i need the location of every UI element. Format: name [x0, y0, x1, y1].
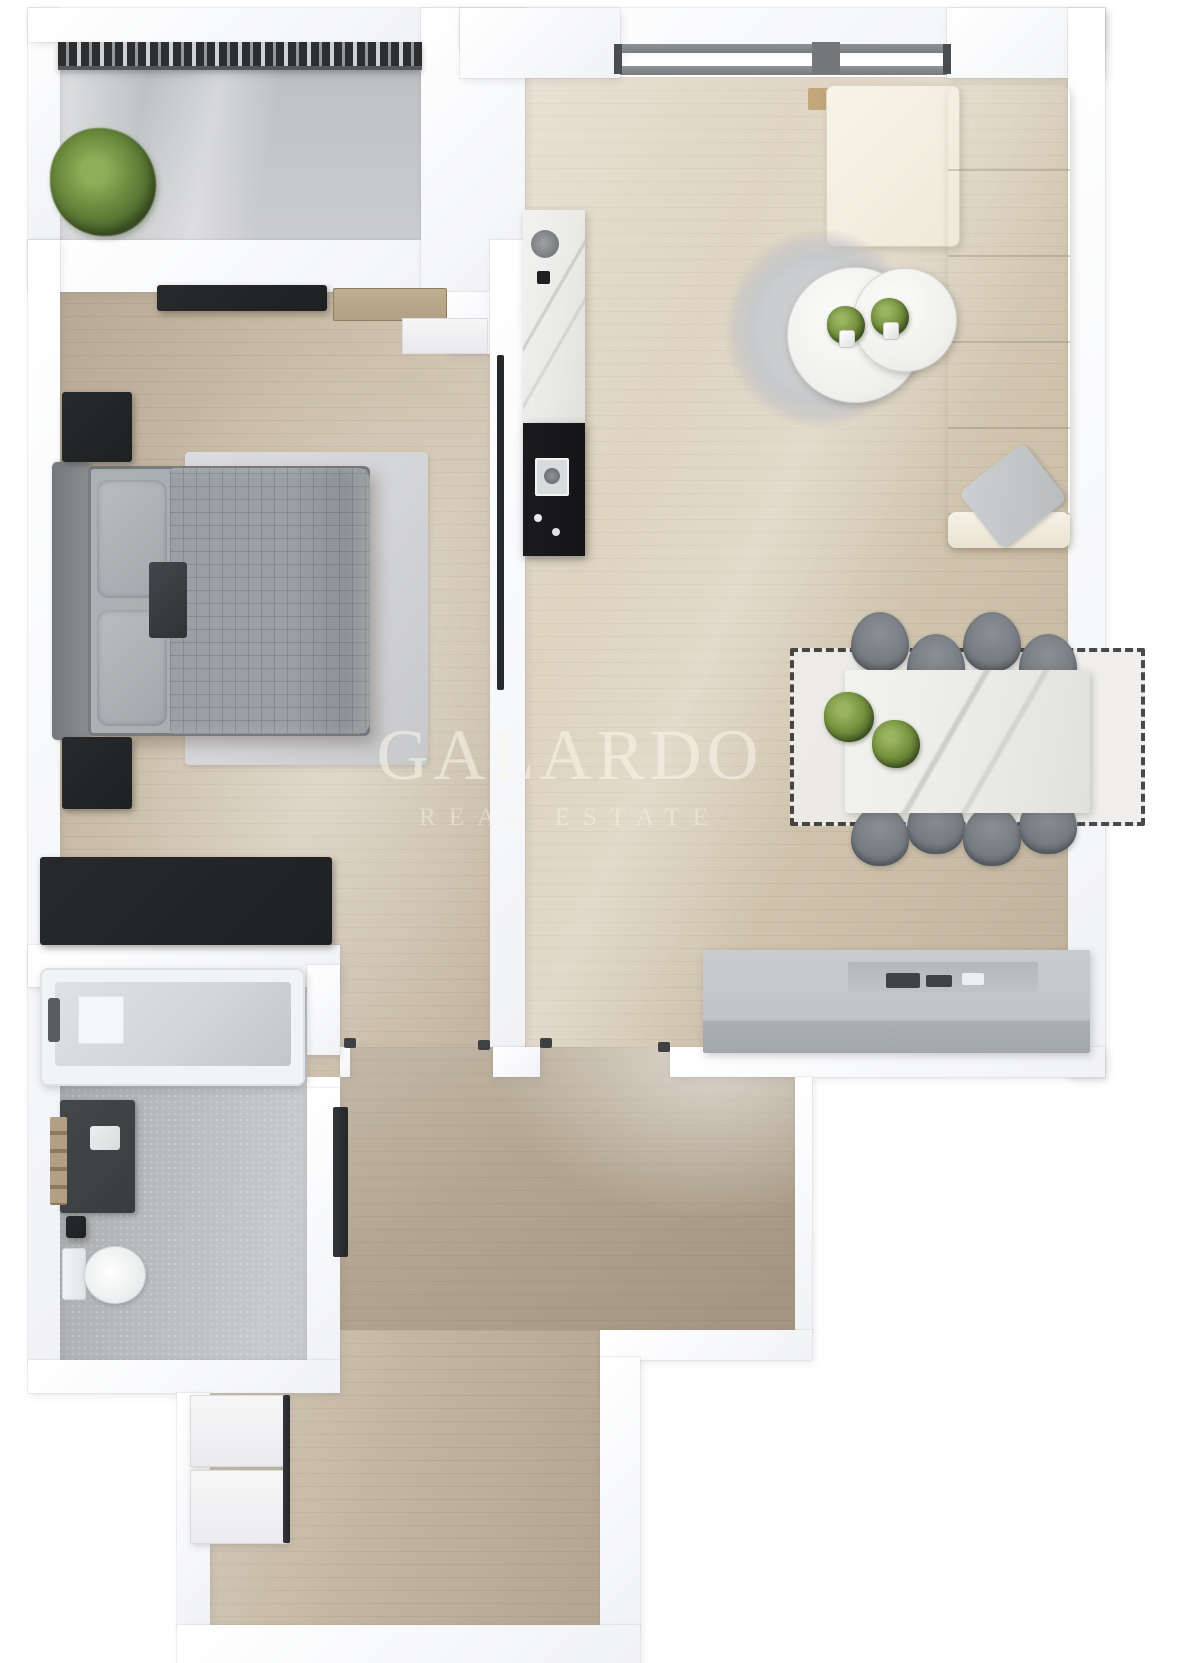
sideboard-slot: [886, 973, 920, 988]
door-stop: [540, 1038, 552, 1048]
black-console: [40, 857, 332, 945]
toilet-tank: [62, 1248, 86, 1300]
towel-rack: [50, 1117, 67, 1205]
sideboard-slot: [926, 975, 952, 987]
dining-table-plant: [872, 720, 920, 768]
balcony-railing: [58, 42, 422, 70]
floor-plan: GALARDO REAL ESTATE: [0, 0, 1200, 1663]
bathtub-faucet: [48, 998, 60, 1042]
bathroom-bin: [66, 1216, 86, 1238]
white-cabinet: [402, 318, 488, 354]
dining-chair: [851, 612, 909, 672]
bed-headboard: [52, 462, 90, 740]
sideboard-detail: [962, 973, 984, 985]
cooktop-knob: [534, 514, 542, 522]
window-frame-inner: [620, 66, 947, 75]
wardrobe-top: [157, 285, 327, 311]
wall-hall-right: [795, 1077, 812, 1332]
door-stop: [658, 1042, 670, 1052]
plant-pot: [839, 330, 855, 348]
wall-bath-right-upper: [307, 965, 340, 1055]
wall-bath-bottom: [28, 1360, 340, 1393]
dining-chair: [963, 612, 1021, 672]
vanity-sink: [90, 1126, 120, 1150]
cooktop-knob: [552, 528, 560, 536]
bed-duvet: [170, 468, 370, 734]
toilet: [84, 1246, 146, 1304]
vanity-unit: [60, 1100, 135, 1213]
wall-balcony-top: [28, 8, 460, 42]
wall-tv: [497, 355, 504, 690]
wall-living-bottom-a: [493, 1047, 540, 1077]
window-end-cap: [943, 44, 951, 74]
bathtub-shelf: [78, 996, 124, 1044]
bed-throw: [149, 562, 187, 638]
dining-chair: [963, 806, 1021, 866]
dining-table-plant: [824, 692, 874, 742]
wall-step: [600, 1330, 812, 1360]
nightstand: [62, 737, 132, 809]
window-frame-outer: [620, 44, 947, 53]
door-stop: [344, 1038, 356, 1048]
plant-pot: [883, 322, 899, 340]
wall-bottom: [177, 1625, 640, 1663]
kitchen-sink: [531, 230, 559, 258]
nightstand: [62, 392, 132, 462]
dresser: [333, 288, 447, 321]
hall-mirror: [333, 1107, 348, 1257]
wall-corridor-right: [600, 1357, 640, 1627]
wall-living-bottom-stub: [340, 1047, 350, 1077]
cooktop: [535, 458, 569, 496]
window-end-cap: [614, 44, 622, 74]
closet-edge: [283, 1395, 290, 1543]
wall-center-divider: [490, 240, 525, 1047]
wall-right-outer: [1068, 8, 1105, 1078]
entry-closet: [190, 1470, 287, 1544]
kitchen-faucet: [537, 271, 550, 284]
wall-balcony-left: [28, 8, 60, 244]
sofa-chaise: [826, 85, 960, 247]
door-stop: [478, 1040, 490, 1050]
entry-closet: [190, 1395, 287, 1467]
wall-living-top-left: [460, 8, 620, 78]
dining-chair: [851, 806, 909, 866]
hallway-floor: [340, 1047, 795, 1332]
window: [620, 44, 947, 78]
window-mullion: [812, 42, 840, 74]
